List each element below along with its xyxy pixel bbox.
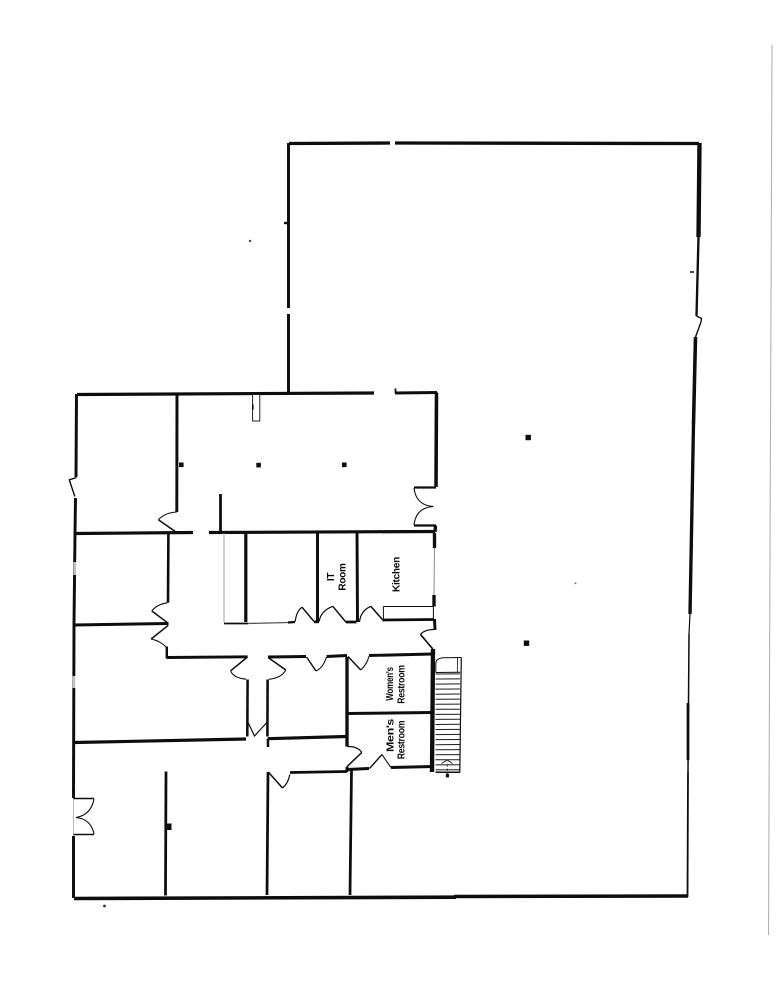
svg-text:IT: IT (326, 573, 337, 581)
svg-text:Restroom: Restroom (396, 720, 407, 759)
svg-text:Women's: Women's (385, 667, 396, 701)
svg-text:Room: Room (338, 563, 349, 591)
svg-text:Restroom: Restroom (397, 665, 408, 704)
svg-text:Kitchen: Kitchen (391, 557, 402, 592)
svg-text:Men's: Men's (386, 718, 397, 752)
